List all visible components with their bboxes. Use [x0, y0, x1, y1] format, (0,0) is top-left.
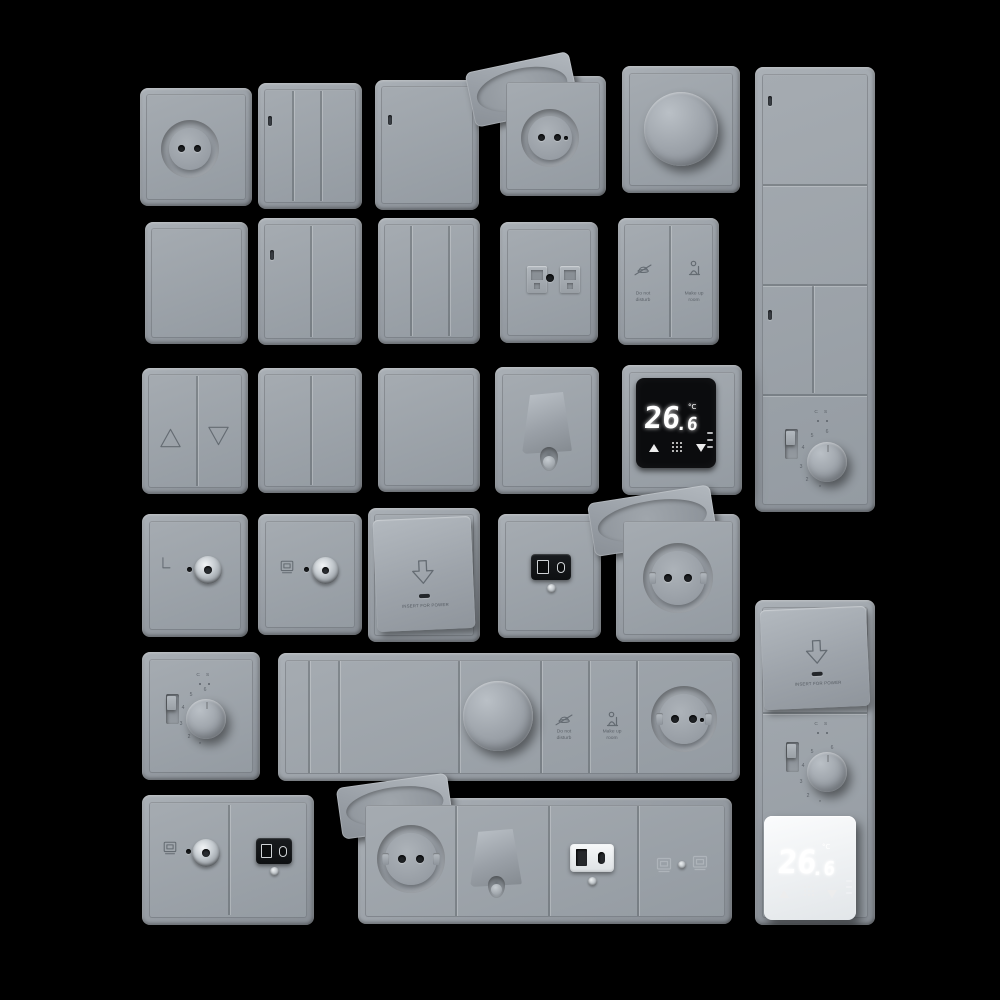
label-line: Make up	[603, 729, 622, 734]
module-divider	[308, 661, 310, 773]
socket-recess	[651, 686, 717, 752]
module-divider	[458, 661, 460, 773]
data-jack	[560, 266, 580, 293]
increase-icon	[649, 444, 659, 452]
coax-connector	[194, 556, 222, 584]
plate-face	[384, 224, 474, 338]
keycard-switch-plate: INSERT FOR POWER	[368, 508, 480, 642]
usb-charger-plate	[498, 514, 601, 638]
side-mark	[846, 892, 852, 894]
switch-3gang-plate	[258, 83, 362, 209]
socket-pin-hole	[664, 574, 672, 582]
dial-number: 4	[802, 445, 805, 450]
tv-socket-plate	[142, 514, 248, 637]
dial-mode-dot	[817, 420, 819, 422]
module-seam	[763, 284, 867, 286]
rocker-divider	[320, 91, 322, 201]
socket-recess	[643, 543, 713, 613]
dial-mode-dot	[826, 732, 828, 734]
dial-mode-dot	[817, 732, 819, 734]
module-divider	[338, 661, 340, 773]
data-jack-notch	[567, 283, 573, 289]
dial-number: 4	[802, 763, 805, 768]
dimmer-knob	[463, 681, 533, 751]
horizontal-multi-panel: Do not disturb Make up room	[278, 653, 740, 781]
socket-face	[528, 116, 572, 160]
label-line: Make up	[685, 291, 704, 296]
rocker-divider	[410, 226, 412, 336]
module-divider	[636, 661, 638, 773]
bell-slash-icon	[553, 711, 575, 727]
dimmer-knob	[644, 92, 718, 166]
analog-thermostat-plate: C S 6 5 4 3 2 *	[142, 652, 260, 780]
corner-icon	[159, 554, 173, 572]
dial-mode-marks: C S	[814, 410, 829, 415]
indicator-led	[768, 96, 772, 106]
hotel-service-switch-plate: Do not disturb Make up room	[618, 218, 719, 345]
keycard-led	[419, 594, 430, 598]
label-line: disturb	[636, 297, 651, 302]
triangle-down-icon	[206, 424, 231, 448]
rocker-divider	[448, 226, 450, 336]
thermostat-mode-slider	[785, 429, 798, 459]
decrease-icon	[696, 444, 706, 452]
indicator-led	[388, 115, 392, 125]
plate-face	[151, 228, 242, 338]
knob-mark	[206, 702, 208, 709]
cable-outlet-plate	[495, 367, 599, 494]
arrow-down-outline-icon	[407, 557, 438, 586]
schuko-socket-lid-plate	[616, 514, 740, 642]
slider-handle	[167, 696, 176, 710]
coax-connector	[312, 557, 339, 584]
side-mark	[846, 886, 852, 888]
earth-clip	[433, 853, 440, 865]
module-divider	[637, 806, 639, 916]
keycard-slot-face: INSERT FOR POWER	[760, 606, 870, 711]
module-divider	[588, 661, 590, 773]
fan-grid-icon	[804, 886, 806, 888]
horizontal-combo-panel	[358, 798, 732, 924]
earth-clip	[649, 572, 656, 584]
socket-recess	[377, 825, 445, 893]
usb-module-white	[570, 844, 614, 872]
do-not-disturb-label: Do not disturb	[557, 729, 572, 742]
earth-clip	[705, 713, 712, 725]
earth-clip	[656, 713, 663, 725]
data-jack	[527, 266, 547, 293]
socket-recess	[521, 109, 579, 167]
dial-mode-marks: C S	[814, 722, 829, 727]
switch-2gang-narrow-plate	[378, 218, 480, 344]
thermostat-dial-knob	[807, 752, 847, 792]
blinds-switch-plate	[142, 368, 248, 494]
usb-c-port	[598, 852, 605, 864]
thermostat-display-white: 26 .6 °C	[764, 816, 856, 920]
socket-face	[659, 694, 709, 744]
switch-2gang-plate	[258, 368, 362, 493]
keycard-led	[812, 672, 823, 676]
data-socket-double-plate	[500, 222, 598, 343]
dial-mode-dot	[826, 420, 828, 422]
dial-number: 5	[811, 433, 814, 438]
dial-mode-dot	[208, 683, 210, 685]
plate-face	[264, 89, 356, 203]
socket-pin-hole	[416, 855, 424, 863]
vertical-combo-panel: INSERT FOR POWER C S 6 5 4 3 2 * 26 .6 °…	[755, 600, 875, 925]
thermostat-mode-slider	[166, 694, 179, 724]
cable-grommet	[543, 456, 555, 468]
socket-recess	[161, 120, 219, 178]
module-divider	[548, 806, 550, 916]
monitor-icon	[161, 840, 179, 856]
dial-number: 3	[180, 721, 183, 726]
earth-clip	[382, 853, 389, 865]
increase-icon	[779, 890, 789, 898]
digital-thermostat-plate: 26 .6 °C	[622, 365, 742, 495]
dial-frost-mark: *	[819, 800, 821, 805]
coax-center-hole	[202, 849, 210, 857]
rocker-divider	[812, 286, 814, 393]
socket-pin-hole	[684, 574, 692, 582]
module-divider	[228, 805, 230, 915]
module-divider	[455, 806, 457, 916]
do-not-disturb-label: Do not disturb	[636, 291, 651, 304]
socket-pin-hole	[398, 855, 406, 863]
usb-module	[256, 838, 292, 864]
fixing-screw	[547, 584, 556, 593]
fixing-screw	[270, 867, 279, 876]
thermostat-display: 26 .6 °C	[636, 378, 716, 468]
earth-clip	[700, 572, 707, 584]
module-divider	[540, 661, 542, 773]
module-seam	[763, 394, 867, 396]
knob-mark	[827, 445, 829, 452]
socket-face	[651, 551, 705, 605]
arrow-down-outline-icon	[801, 637, 832, 666]
monitor-icon	[278, 559, 296, 575]
data-jack-notch	[534, 283, 540, 289]
usb-a-port	[537, 560, 549, 574]
dial-number: 5	[190, 692, 193, 697]
socket-pin-hole	[194, 145, 201, 152]
data-jack-slot	[564, 270, 576, 280]
dial-number: 6	[831, 745, 834, 750]
coax-center-hole	[322, 567, 329, 574]
housekeeping-icon	[684, 259, 704, 279]
insert-for-power-label: INSERT FOR POWER	[795, 681, 842, 687]
socket-face	[385, 833, 437, 885]
indicator-led	[268, 116, 272, 126]
thermostat-mode-slider	[786, 742, 799, 772]
side-mark	[846, 880, 852, 882]
rocker-divider	[310, 226, 312, 337]
thermostat-dial-knob	[186, 699, 226, 739]
plate-face	[384, 374, 474, 486]
dial-mode-marks: C S	[196, 673, 211, 678]
slider-handle	[786, 431, 795, 445]
temperature-decimal: .6	[811, 860, 836, 879]
usb-c-port	[279, 846, 287, 857]
fixing-screw	[678, 861, 686, 869]
switch-blank-plate	[145, 222, 248, 344]
side-mark	[707, 446, 713, 448]
dial-number: 5	[811, 749, 814, 754]
indicator-hole	[187, 567, 192, 572]
label-line: disturb	[557, 735, 572, 740]
insert-for-power-label: INSERT FOR POWER	[402, 603, 449, 609]
switch-2gang-plate	[258, 218, 362, 345]
socket-earth-hole	[564, 136, 568, 140]
tv-usb-combo-plate	[142, 795, 314, 925]
thermostat-dial-knob	[807, 442, 847, 482]
tv-socket-plate	[258, 514, 362, 635]
make-up-room-label: Make up room	[603, 729, 622, 742]
data-jack-slot	[531, 270, 543, 280]
module-seam	[763, 712, 867, 714]
label-line: Do not	[557, 729, 572, 734]
dimmer-plate	[622, 66, 740, 193]
temperature-unit: °C	[688, 404, 696, 411]
plate-face	[762, 74, 868, 505]
decrease-icon	[827, 890, 837, 898]
triangle-up-icon	[158, 426, 183, 450]
label-line: room	[606, 735, 617, 740]
indicator-led	[768, 310, 772, 320]
dial-number: 2	[188, 734, 191, 739]
indicator-hole	[304, 567, 309, 572]
temperature-unit: °C	[822, 844, 830, 851]
fan-grid-icon	[672, 442, 674, 444]
housekeeping-icon	[602, 710, 622, 730]
switch-1gang-plate	[375, 80, 479, 210]
vertical-multi-panel: C S 6 5 4 3 2 *	[755, 67, 875, 512]
socket-pin-hole	[689, 715, 697, 723]
socket-pin-hole	[538, 134, 545, 141]
dial-frost-mark: *	[819, 485, 821, 490]
indicator-led	[270, 250, 274, 260]
render-canvas: C S 6 5 4 3 2 * Do not disturb Make up r…	[0, 0, 1000, 1000]
label-line: room	[688, 297, 699, 302]
dial-number: 2	[807, 793, 810, 798]
monitor-icon	[690, 854, 710, 872]
dial-number: 3	[800, 779, 803, 784]
dial-mode-dot	[199, 683, 201, 685]
rocker-divider	[292, 91, 294, 201]
indicator-hole	[186, 849, 191, 854]
socket-euro-plate	[140, 88, 252, 206]
fixing-screw-hole	[546, 274, 554, 282]
fixing-screw	[588, 877, 597, 886]
socket-pin-hole	[178, 145, 185, 152]
usb-module	[531, 554, 571, 580]
dial-number: 2	[806, 477, 809, 482]
coax-connector	[192, 839, 220, 867]
plate-face	[381, 86, 473, 204]
monitor-icon	[654, 856, 674, 874]
rocker-divider	[669, 226, 671, 337]
rocker-divider	[310, 376, 312, 485]
knob-mark	[827, 755, 829, 762]
slider-handle	[787, 744, 796, 758]
coax-center-hole	[204, 566, 212, 574]
keycard-slot-face: INSERT FOR POWER	[373, 516, 476, 632]
socket-pin-hole	[554, 134, 561, 141]
dial-number: 6	[204, 687, 207, 692]
rocker-divider	[196, 376, 198, 486]
module-seam	[763, 184, 867, 186]
side-mark	[707, 432, 713, 434]
usb-a-port	[261, 844, 272, 858]
make-up-room-label: Make up room	[685, 291, 704, 304]
dial-frost-mark: *	[199, 742, 201, 747]
socket-face	[169, 128, 211, 170]
label-line: Do not	[636, 291, 651, 296]
usb-c-port	[557, 562, 565, 573]
temperature-decimal: .6	[675, 416, 698, 434]
switch-1gang-plate	[378, 368, 480, 492]
usb-a-port	[576, 849, 587, 866]
socket-with-lid-plate	[500, 76, 606, 196]
dial-number: 6	[826, 429, 829, 434]
socket-pin-hole	[671, 715, 679, 723]
cable-grommet	[491, 884, 502, 895]
side-mark	[707, 439, 713, 441]
socket-earth-hole	[700, 718, 704, 722]
bell-slash-icon	[632, 261, 654, 277]
dial-number: 4	[182, 705, 185, 710]
dial-number: 3	[800, 464, 803, 469]
